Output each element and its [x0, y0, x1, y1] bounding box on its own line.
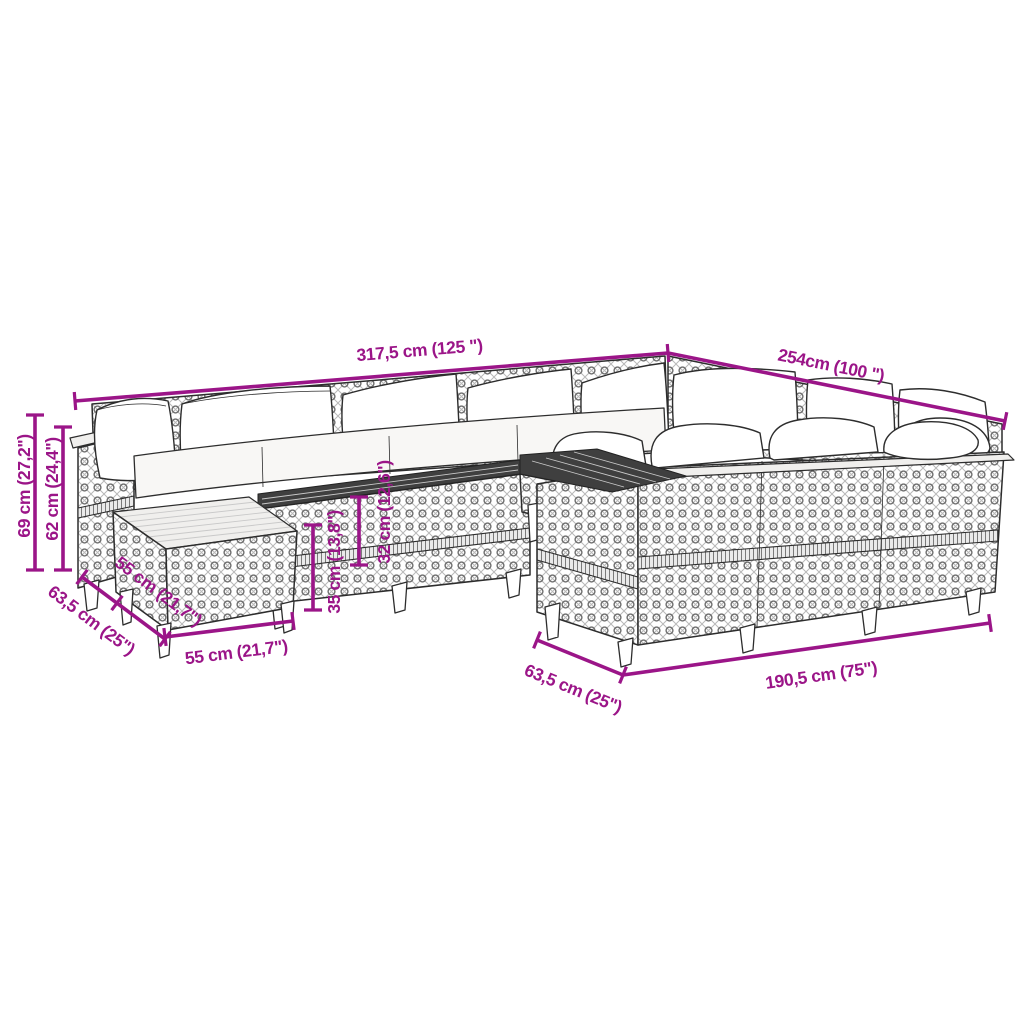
- sofa-illustration: [70, 356, 1014, 667]
- dim-table-height-label: 32 cm (12,6"): [374, 460, 394, 563]
- dim-total-height: 69 cm (27,2"): [14, 415, 44, 570]
- dim-back-width-label: 317,5 cm (125 "): [356, 335, 484, 365]
- dim-seat-height-label: 35 cm (13,8"): [324, 510, 344, 613]
- dim-front-length-label: 190,5 cm (75"): [764, 657, 878, 693]
- sofa-set-diagram-svg: 317,5 cm (125 ") 254cm (100 ") 69 cm (27…: [0, 0, 1024, 1024]
- dim-backrest-height: 62 cm (24,4"): [42, 427, 72, 570]
- product-diagram: 317,5 cm (125 ") 254cm (100 ") 69 cm (27…: [0, 0, 1024, 1024]
- dim-backrest-height-label: 62 cm (24,4"): [42, 437, 62, 540]
- dim-ottoman-width-label: 55 cm (21,7"): [184, 636, 289, 669]
- dim-front-depth: 63,5 cm (25"): [522, 632, 627, 717]
- dim-total-height-label: 69 cm (27,2"): [14, 434, 34, 537]
